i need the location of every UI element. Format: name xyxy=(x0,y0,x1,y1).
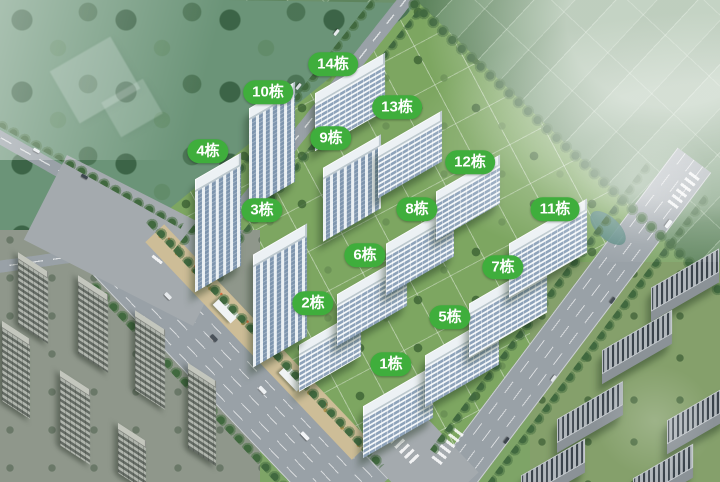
building-marker-9[interactable]: 9栋 xyxy=(310,126,351,150)
building-marker-14[interactable]: 14栋 xyxy=(308,52,358,76)
building-marker-2[interactable]: 2栋 xyxy=(292,291,333,315)
building-marker-7[interactable]: 7栋 xyxy=(482,255,523,279)
old-building-6 xyxy=(188,363,216,466)
building-marker-1[interactable]: 1栋 xyxy=(370,352,411,376)
building-marker-13[interactable]: 13栋 xyxy=(372,95,422,119)
building-marker-10[interactable]: 10栋 xyxy=(243,80,293,104)
building-marker-12[interactable]: 12栋 xyxy=(445,150,495,174)
building-marker-4[interactable]: 4栋 xyxy=(187,139,228,163)
building-marker-11[interactable]: 11栋 xyxy=(531,197,580,221)
building-marker-8[interactable]: 8栋 xyxy=(396,197,437,221)
aerial-view: 1栋 2栋 3栋 4栋 5栋 6栋 7栋 8栋 9栋 10栋 11栋 12栋 1… xyxy=(0,0,720,482)
building-marker-5[interactable]: 5栋 xyxy=(429,305,470,329)
building-marker-3[interactable]: 3栋 xyxy=(241,198,282,222)
building-marker-6[interactable]: 6栋 xyxy=(344,243,385,267)
